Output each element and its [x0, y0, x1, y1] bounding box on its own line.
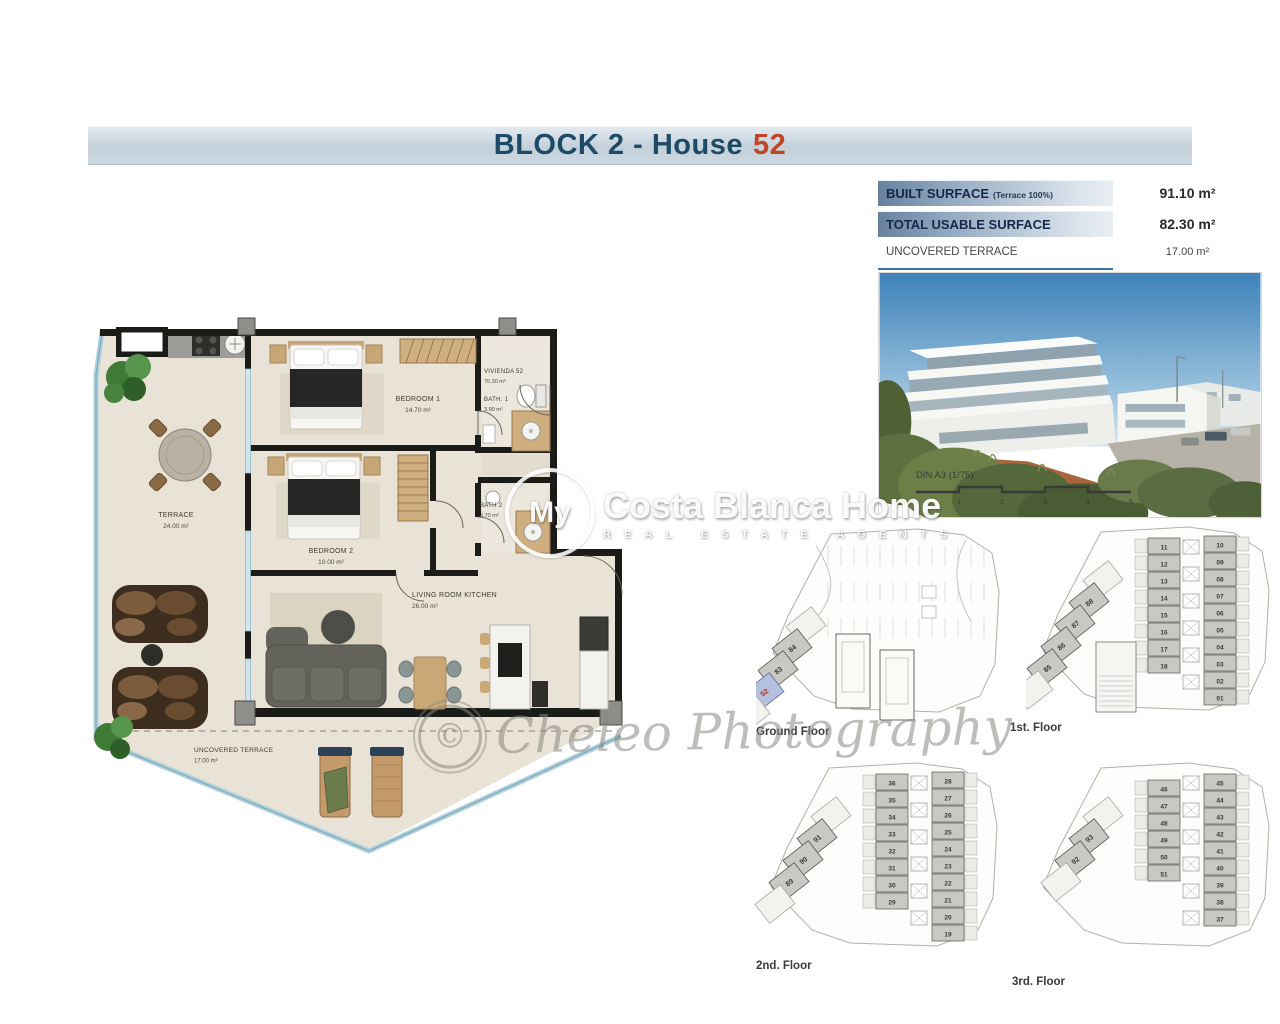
room-area: 14.70 m²	[405, 407, 431, 414]
unit-number: 34	[888, 815, 896, 822]
unit-number: 30	[888, 883, 896, 890]
unit-number: 14	[1160, 596, 1168, 603]
unit-number: 25	[944, 830, 952, 837]
mini-plan-svg: 848352	[756, 526, 1006, 738]
unit-number: 16	[1160, 630, 1168, 637]
hall-shelf	[482, 455, 550, 475]
unit-number: 02	[1216, 679, 1224, 686]
room-area: 70.30 m²	[484, 379, 506, 385]
unit-number: 22	[944, 881, 952, 888]
house-number: 52	[753, 129, 786, 161]
room-label: UNCOVERED TERRACE	[194, 747, 274, 754]
unit-number: 47	[1160, 804, 1168, 811]
unit-number: 48	[1160, 821, 1168, 828]
unit-number: 46	[1160, 787, 1168, 794]
unit-number: 27	[944, 796, 952, 803]
mini-plan-svg: 3635343332313029282726252423222120199190…	[754, 760, 1004, 972]
unit-number: 19	[944, 932, 952, 939]
title-prefix: BLOCK 2 - House	[494, 129, 743, 161]
surface-label: TOTAL USABLE SURFACE	[886, 212, 1051, 238]
unit-number: 32	[888, 849, 896, 856]
room-area: 24.00 m²	[163, 523, 189, 530]
unit-number: 08	[1216, 577, 1224, 584]
unit-number: 15	[1160, 613, 1168, 620]
floor-caption: 1st. Floor	[1010, 722, 1062, 734]
surface-bar: BUILT SURFACE(Terrace 100%)	[878, 180, 1113, 206]
title-bar: BLOCK 2 - House52	[88, 126, 1192, 165]
room-label: BATH 2	[480, 503, 503, 509]
unit-number: 04	[1216, 645, 1224, 652]
unit-number: 40	[1216, 866, 1224, 873]
main-floor-plan: TERRACE24.00 m²BEDROOM 114.70 m²VIVIENDA…	[88, 315, 668, 875]
bath1-fixtures	[482, 337, 550, 451]
unit-number: 13	[1160, 579, 1168, 586]
surface-sublabel: (Terrace 100%)	[993, 190, 1053, 200]
floor-plan-svg: TERRACE24.00 m²BEDROOM 114.70 m²VIVIENDA…	[88, 315, 668, 875]
scale-tick: 5	[1129, 497, 1133, 506]
scale-label: DIN A3 (1/75)	[916, 470, 1148, 481]
surface-table: BUILT SURFACE(Terrace 100%)91.10 m²TOTAL…	[878, 180, 1262, 270]
surface-value: 82.30 m²	[1113, 216, 1262, 232]
mini-floor-plan-ground-floor: 848352Ground Floor	[756, 526, 1006, 761]
unit-number: 09	[1216, 560, 1224, 567]
skylight	[121, 332, 163, 352]
room-area: 17.00 m²	[194, 759, 218, 765]
side-table	[141, 644, 163, 666]
floor-caption: 3rd. Floor	[1012, 976, 1065, 988]
unit-number: 44	[1216, 798, 1224, 805]
mini-floor-plan-1st-floor: 1112131415161718100908070605040302018887…	[1026, 524, 1276, 759]
unit-number: 29	[888, 900, 896, 907]
surface-label: BUILT SURFACE	[886, 181, 989, 207]
scale-tick: 3	[1043, 497, 1047, 506]
unit-number: 05	[1216, 628, 1224, 635]
room-label: TERRACE	[158, 512, 194, 519]
sun-lounger	[318, 747, 352, 817]
unit-number: 41	[1216, 849, 1224, 856]
room-area: 10.00 m²	[318, 559, 344, 566]
unit-number: 39	[1216, 883, 1224, 890]
unit-number: 01	[1216, 696, 1224, 703]
mini-floor-plan-2nd-floor: 3635343332313029282726252423222120199190…	[754, 760, 1004, 995]
unit-number: 26	[944, 813, 952, 820]
room-label: BATH. 1	[484, 397, 509, 403]
page-title: BLOCK 2 - House52	[494, 129, 786, 162]
unit-number: 10	[1216, 543, 1224, 550]
surface-row: UNCOVERED TERRACE17.00 m²	[878, 242, 1262, 262]
surface-row: TOTAL USABLE SURFACE82.30 m²	[878, 211, 1262, 237]
unit-number: 33	[888, 832, 896, 839]
unit-number: 37	[1216, 917, 1224, 924]
car	[1205, 432, 1227, 441]
kitchen-tall-units	[580, 617, 608, 709]
unit-number: 49	[1160, 838, 1168, 845]
unit-number: 35	[888, 798, 896, 805]
unit-number: 23	[944, 864, 952, 871]
main-building	[899, 336, 1115, 457]
mini-floor-plan-3rd-floor: 46474849505145444342414039383793923rd. F…	[1026, 760, 1276, 995]
floor-caption: Ground Floor	[756, 726, 829, 738]
unit-number: 03	[1216, 662, 1224, 669]
scale-ruler: 012345	[908, 483, 1148, 507]
brochure-page: BLOCK 2 - House52 BUILT SURFACE(Terrace …	[0, 0, 1280, 1024]
wardrobe	[400, 339, 476, 363]
scale-tick: 1	[957, 497, 961, 506]
scale-tick: 2	[1000, 497, 1004, 506]
living-room-furniture	[266, 593, 386, 707]
scale-tick: 0	[914, 497, 918, 506]
surface-bar: TOTAL USABLE SURFACE	[878, 211, 1113, 237]
surface-value: 91.10 m²	[1113, 185, 1262, 201]
unit-number: 17	[1160, 647, 1168, 654]
unit-number: 06	[1216, 611, 1224, 618]
room-label: BEDROOM 1	[396, 396, 441, 403]
unit-number: 45	[1216, 781, 1224, 788]
room-label: BEDROOM 2	[309, 548, 354, 555]
surface-label: UNCOVERED TERRACE	[886, 246, 1017, 258]
surface-plain-label: UNCOVERED TERRACE	[878, 242, 1113, 262]
room-area: 3.90 m²	[484, 407, 503, 413]
bath2-fixtures	[482, 485, 550, 553]
table-divider	[878, 268, 1113, 270]
terrace-sofa	[112, 585, 208, 643]
car	[1181, 438, 1199, 446]
room-area: 26.00 m²	[412, 603, 438, 610]
unit-number: 24	[944, 847, 952, 854]
wardrobe	[398, 455, 428, 521]
unit-number: 50	[1160, 855, 1168, 862]
unit-number: 18	[1160, 664, 1168, 671]
room-label: VIVIENDA 52	[484, 369, 524, 375]
mini-plan-svg: 1112131415161718100908070605040302018887…	[1026, 524, 1276, 736]
unit-number: 28	[944, 779, 952, 786]
unit-number: 07	[1216, 594, 1224, 601]
unit-number: 38	[1216, 900, 1224, 907]
floor-caption: 2nd. Floor	[756, 960, 812, 972]
unit-number: 20	[944, 915, 952, 922]
scale-bar: DIN A3 (1/75) 012345	[908, 470, 1148, 512]
unit-number: 43	[1216, 815, 1224, 822]
scale-tick: 4	[1086, 497, 1090, 506]
terrace-dining-table	[148, 418, 222, 492]
unit-number: 36	[888, 781, 896, 788]
sun-lounger	[370, 747, 404, 817]
room-label: LIVING ROOM KITCHEN	[412, 592, 497, 599]
unit-number: 51	[1160, 872, 1168, 879]
mini-plan-svg: 4647484950514544434241403938379392	[1026, 760, 1276, 972]
room-area: 3.70 m²	[480, 513, 499, 519]
unit-number: 12	[1160, 562, 1168, 569]
unit-number: 11	[1161, 545, 1168, 552]
car	[1231, 428, 1251, 436]
surface-row: BUILT SURFACE(Terrace 100%)91.10 m²	[878, 180, 1262, 206]
unit-number: 21	[944, 898, 952, 905]
unit-number: 31	[888, 866, 896, 873]
unit-number: 42	[1216, 832, 1224, 839]
surface-value: 17.00 m²	[1113, 246, 1262, 258]
